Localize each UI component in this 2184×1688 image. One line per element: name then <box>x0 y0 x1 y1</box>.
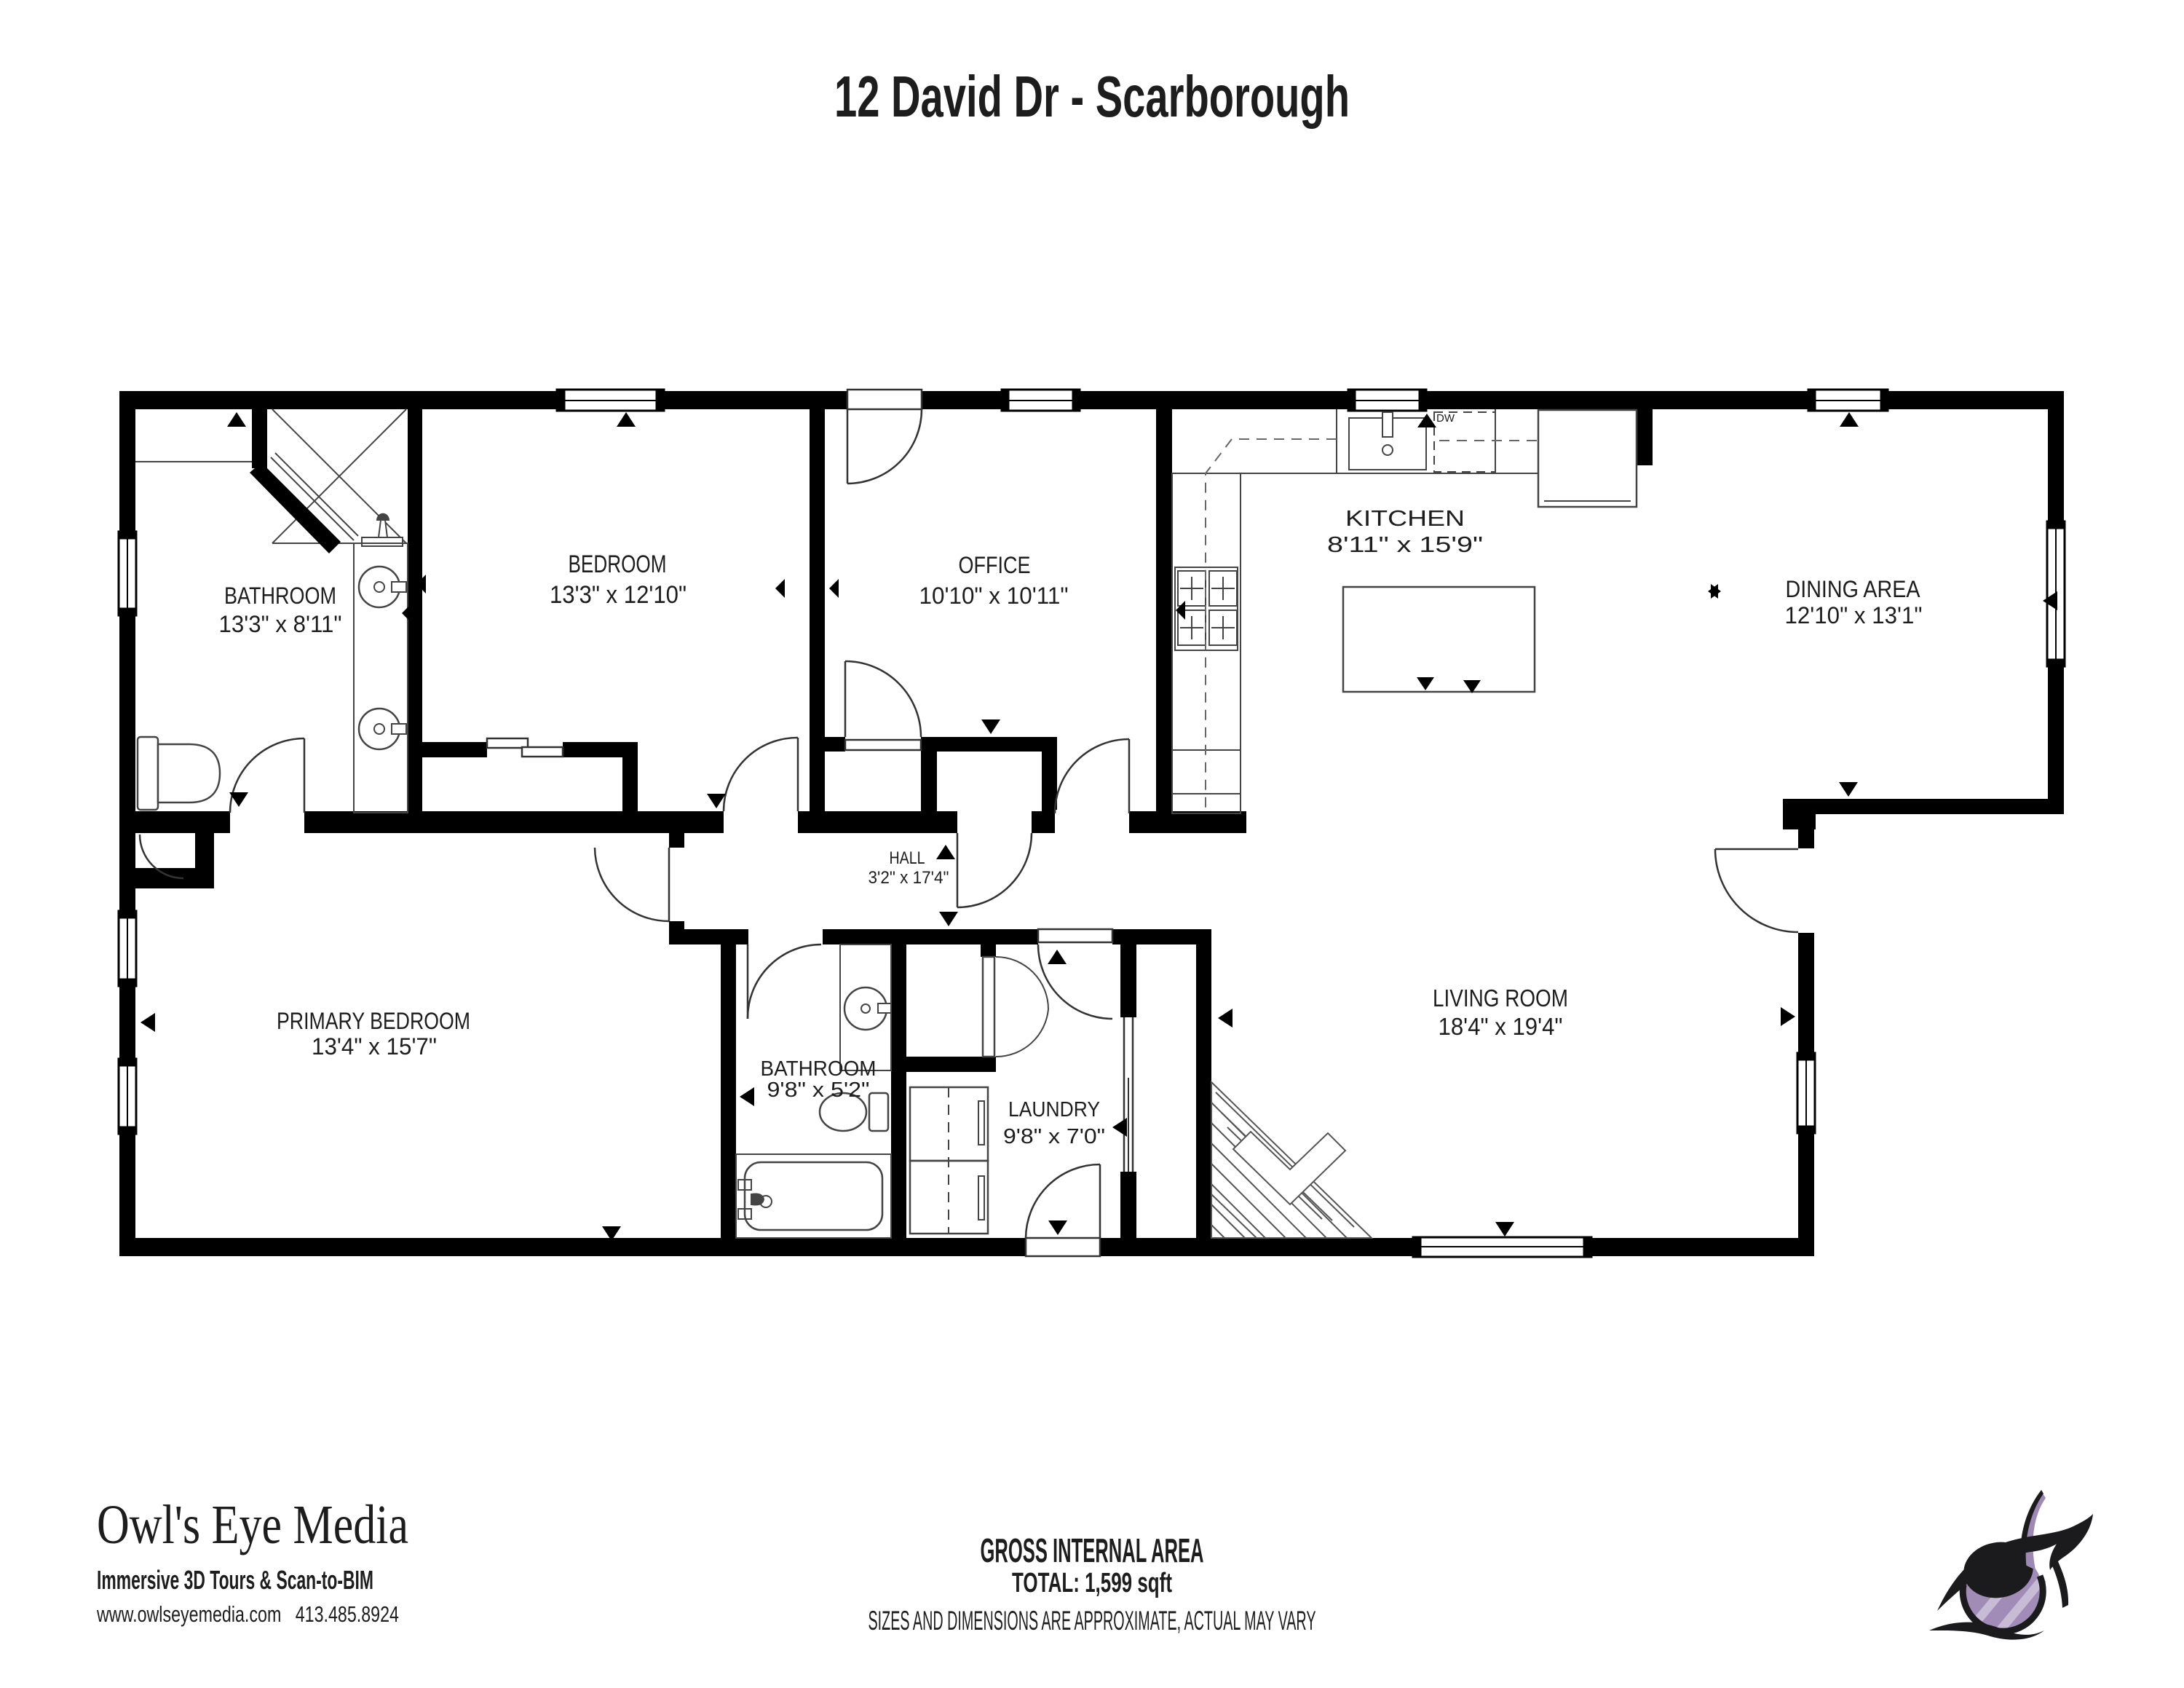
svg-text:SIZES AND DIMENSIONS ARE APPRO: SIZES AND DIMENSIONS ARE APPROXIMATE, AC… <box>869 1606 1316 1636</box>
svg-text:BATHROOM: BATHROOM <box>224 583 336 609</box>
svg-text:10'10" x 10'11": 10'10" x 10'11" <box>919 583 1069 609</box>
svg-text:LAUNDRY: LAUNDRY <box>1008 1098 1100 1121</box>
svg-text:BEDROOM: BEDROOM <box>569 551 667 578</box>
svg-text:12'10" x 13'1": 12'10" x 13'1" <box>1785 602 1923 628</box>
svg-text:www.owlseyemedia.com 413.485: www.owlseyemedia.com 413.485.8924 <box>96 1601 399 1627</box>
svg-text:DINING AREA: DINING AREA <box>1786 576 1921 602</box>
svg-text:8'11" x 15'9": 8'11" x 15'9" <box>1327 532 1483 557</box>
svg-text:13'3" x 8'11": 13'3" x 8'11" <box>219 611 342 637</box>
svg-text:TOTAL: 1,599 sqft: TOTAL: 1,599 sqft <box>1012 1568 1172 1598</box>
svg-text:9'8" x 5'2": 9'8" x 5'2" <box>767 1078 870 1102</box>
svg-text:OFFICE: OFFICE <box>959 552 1031 578</box>
svg-text:GROSS INTERNAL AREA: GROSS INTERNAL AREA <box>981 1531 1204 1569</box>
svg-text:13'3" x 12'10": 13'3" x 12'10" <box>550 581 687 609</box>
svg-text:13'4" x 15'7": 13'4" x 15'7" <box>312 1033 437 1060</box>
svg-text:BATHROOM: BATHROOM <box>761 1057 877 1081</box>
svg-text:PRIMARY BEDROOM: PRIMARY BEDROOM <box>277 1008 470 1034</box>
svg-text:12 David Dr - Scarborough: 12 David Dr - Scarborough <box>834 64 1350 129</box>
svg-text:3'2" x 17'4": 3'2" x 17'4" <box>869 868 949 888</box>
svg-text:Immersive 3D Tours & Scan-to-B: Immersive 3D Tours & Scan-to-BIM <box>97 1565 373 1595</box>
svg-text:LIVING ROOM: LIVING ROOM <box>1433 985 1568 1011</box>
svg-text:DW: DW <box>1436 412 1455 425</box>
svg-text:HALL: HALL <box>890 848 925 868</box>
svg-text:18'4" x 19'4": 18'4" x 19'4" <box>1439 1013 1563 1040</box>
svg-text:9'8" x 7'0": 9'8" x 7'0" <box>1003 1125 1105 1148</box>
svg-text:KITCHEN: KITCHEN <box>1345 505 1465 531</box>
svg-text:Owl's Eye Media: Owl's Eye Media <box>97 1494 408 1555</box>
